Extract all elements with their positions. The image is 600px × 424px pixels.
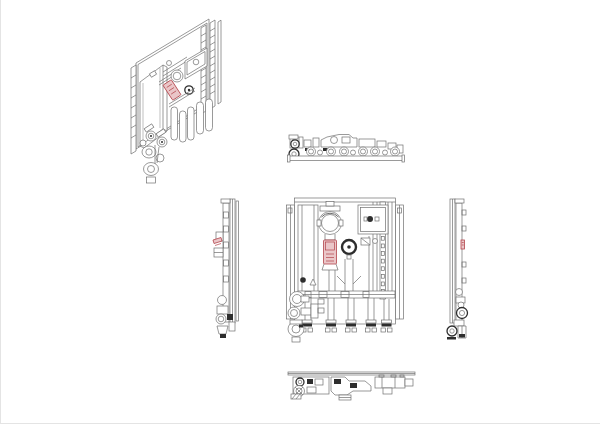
pipe-connection-circles <box>307 147 400 156</box>
top-view-bar <box>288 155 405 162</box>
bottom-view-bar <box>288 372 415 375</box>
top-view <box>287 131 405 165</box>
drawing-sheet <box>0 0 600 424</box>
pump-head-iso <box>171 70 183 82</box>
front-view <box>285 196 405 343</box>
left-view-body <box>214 199 239 323</box>
bottom-view-left-assembly <box>291 377 329 399</box>
right-side-view <box>444 198 474 340</box>
bottom-view-right <box>375 375 413 394</box>
isometric-view <box>129 12 227 186</box>
control-box-front <box>358 205 388 234</box>
pump-red-label-left <box>213 238 222 246</box>
bottom-view <box>287 370 417 403</box>
bottom-view-middle <box>331 377 371 400</box>
pump-red-label-right <box>461 240 465 249</box>
manifold-front <box>298 291 395 298</box>
left-side-view <box>211 198 241 338</box>
